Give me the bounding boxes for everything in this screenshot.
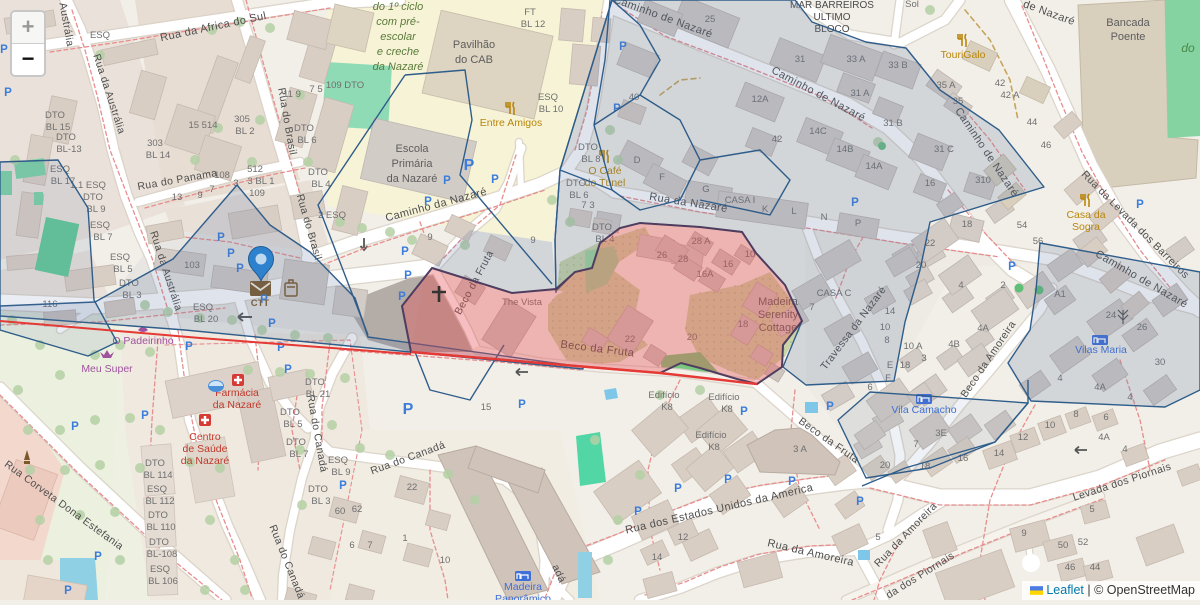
- svg-text:P: P: [856, 496, 864, 508]
- svg-text:Poente: Poente: [1111, 31, 1146, 43]
- svg-text:Bancada: Bancada: [1106, 17, 1150, 29]
- svg-text:109 DTO: 109 DTO: [326, 80, 364, 91]
- svg-text:3: 3: [921, 353, 926, 364]
- svg-text:22: 22: [407, 482, 418, 493]
- svg-text:4: 4: [958, 280, 963, 291]
- svg-text:6: 6: [1103, 412, 1108, 423]
- svg-text:e creche: e creche: [377, 46, 419, 58]
- svg-text:4A: 4A: [1098, 432, 1110, 443]
- svg-text:P: P: [141, 410, 149, 422]
- svg-text:52: 52: [1078, 537, 1089, 548]
- svg-text:BL 7: BL 7: [93, 232, 112, 243]
- svg-text:Edifício: Edifício: [695, 430, 726, 441]
- svg-text:da Nazaré: da Nazaré: [387, 173, 438, 185]
- svg-text:13: 13: [172, 192, 183, 203]
- svg-text:44: 44: [1027, 117, 1038, 128]
- svg-text:DTO: DTO: [45, 110, 65, 121]
- svg-text:10: 10: [1045, 420, 1056, 431]
- svg-text:15 514: 15 514: [188, 120, 217, 131]
- svg-text:2: 2: [1000, 280, 1005, 291]
- svg-text:Escola: Escola: [395, 143, 429, 155]
- svg-text:P: P: [424, 196, 432, 208]
- svg-text:3 A: 3 A: [793, 444, 807, 455]
- svg-text:BL 4: BL 4: [311, 179, 330, 190]
- svg-text:DTO: DTO: [294, 123, 314, 134]
- svg-text:P: P: [401, 246, 409, 258]
- svg-text:K8: K8: [721, 404, 733, 415]
- svg-text:BL-13: BL-13: [56, 144, 81, 155]
- svg-text:DTO: DTO: [305, 377, 325, 388]
- svg-text:de Saúde: de Saúde: [183, 443, 228, 455]
- svg-text:50: 50: [1058, 540, 1069, 551]
- svg-text:109: 109: [249, 188, 265, 199]
- svg-text:escolar: escolar: [380, 31, 417, 43]
- svg-text:44: 44: [1090, 562, 1101, 573]
- svg-text:5: 5: [875, 532, 880, 543]
- svg-text:DTO: DTO: [286, 437, 306, 448]
- svg-text:BL 14: BL 14: [146, 150, 170, 161]
- svg-text:P: P: [403, 401, 414, 418]
- svg-text:DTO: DTO: [83, 192, 103, 203]
- svg-text:1: 1: [402, 533, 407, 544]
- svg-text:8: 8: [1073, 409, 1078, 420]
- svg-text:Meu Super: Meu Super: [81, 363, 133, 375]
- svg-text:10: 10: [440, 555, 451, 566]
- svg-text:P: P: [284, 364, 292, 376]
- svg-text:Panorâmico: Panorâmico: [495, 593, 551, 600]
- svg-text:P: P: [788, 476, 796, 488]
- svg-text:12: 12: [678, 532, 689, 543]
- svg-text:do: do: [1181, 41, 1195, 55]
- svg-text:DTO: DTO: [308, 167, 328, 178]
- svg-text:ESQ: ESQ: [328, 455, 348, 466]
- svg-text:com pré-: com pré-: [376, 16, 420, 28]
- svg-text:62: 62: [352, 504, 363, 515]
- svg-text:O Padeirinho: O Padeirinho: [112, 335, 173, 347]
- svg-text:Edifício: Edifício: [648, 390, 679, 401]
- svg-text:46: 46: [1065, 562, 1076, 573]
- svg-text:DTO: DTO: [149, 537, 169, 548]
- svg-text:P: P: [518, 399, 526, 411]
- svg-text:P: P: [0, 44, 8, 56]
- svg-text:15: 15: [481, 402, 492, 413]
- svg-text:303: 303: [147, 138, 163, 149]
- svg-text:54: 54: [1017, 220, 1028, 231]
- svg-text:P: P: [64, 585, 72, 597]
- svg-text:P: P: [185, 341, 193, 353]
- svg-text:60: 60: [335, 506, 346, 517]
- svg-text:K8: K8: [708, 442, 720, 453]
- svg-text:DTO: DTO: [280, 407, 300, 418]
- svg-text:7: 7: [209, 184, 214, 195]
- svg-text:DTO: DTO: [308, 484, 328, 495]
- svg-text:BL 6: BL 6: [297, 135, 316, 146]
- svg-text:14: 14: [994, 448, 1005, 459]
- svg-text:46: 46: [1041, 140, 1052, 151]
- svg-text:P: P: [464, 157, 475, 174]
- svg-text:7 5: 7 5: [309, 84, 322, 95]
- svg-text:DTO: DTO: [148, 510, 168, 521]
- svg-text:BL 114: BL 114: [143, 470, 172, 481]
- svg-text:BL 12: BL 12: [521, 19, 545, 30]
- svg-text:BL 10: BL 10: [539, 104, 563, 115]
- svg-text:P: P: [1136, 199, 1144, 211]
- svg-text:10 A: 10 A: [903, 341, 923, 352]
- svg-text:P: P: [404, 270, 412, 282]
- svg-text:do CAB: do CAB: [455, 54, 493, 66]
- svg-text:ESQ: ESQ: [147, 484, 167, 495]
- svg-text:BL 9: BL 9: [331, 467, 350, 478]
- svg-text:BL 9: BL 9: [86, 204, 105, 215]
- svg-text:Madeira: Madeira: [504, 581, 542, 593]
- svg-text:9: 9: [427, 232, 432, 243]
- svg-text:P: P: [1008, 261, 1016, 273]
- svg-text:P: P: [674, 483, 682, 495]
- svg-text:da Nazaré: da Nazaré: [373, 61, 424, 73]
- svg-text:do 1º ciclo: do 1º ciclo: [373, 1, 424, 13]
- svg-text:ESQ: ESQ: [90, 220, 110, 231]
- svg-text:18: 18: [962, 219, 973, 230]
- svg-text:108: 108: [214, 170, 230, 181]
- svg-text:BL 106: BL 106: [148, 576, 178, 587]
- svg-text:3 BL 1: 3 BL 1: [247, 176, 274, 187]
- svg-text:4B: 4B: [948, 339, 960, 350]
- svg-text:Casa da: Casa da: [1066, 209, 1105, 221]
- svg-text:ESQ: ESQ: [538, 92, 558, 103]
- svg-text:BL 3: BL 3: [311, 496, 330, 507]
- svg-text:DTO: DTO: [56, 132, 76, 143]
- svg-text:5: 5: [1089, 504, 1094, 515]
- svg-text:BL-108: BL-108: [147, 549, 178, 560]
- svg-text:Entre Amigos: Entre Amigos: [480, 117, 542, 129]
- svg-text:42: 42: [995, 78, 1006, 89]
- svg-text:ESQ: ESQ: [150, 564, 170, 575]
- svg-text:Sogra: Sogra: [1072, 221, 1100, 233]
- svg-text:BL 21: BL 21: [306, 389, 330, 400]
- svg-text:P: P: [491, 174, 499, 186]
- svg-text:11 9: 11 9: [283, 89, 301, 100]
- svg-text:BL 7: BL 7: [289, 449, 308, 460]
- svg-text:TouriGalo: TouriGalo: [941, 49, 986, 61]
- svg-text:P: P: [724, 474, 732, 486]
- svg-text:BL 110: BL 110: [146, 522, 175, 533]
- svg-text:BL 5: BL 5: [283, 419, 302, 430]
- svg-text:Pavilhão: Pavilhão: [453, 39, 495, 51]
- svg-text:DTO: DTO: [145, 458, 165, 469]
- svg-text:P: P: [71, 421, 79, 433]
- svg-text:P: P: [443, 175, 451, 187]
- svg-text:42 A: 42 A: [1000, 90, 1020, 101]
- svg-text:BL 2: BL 2: [235, 126, 254, 137]
- svg-text:da Nazaré: da Nazaré: [213, 399, 262, 411]
- svg-text:4A: 4A: [977, 323, 989, 334]
- svg-text:ESQ: ESQ: [90, 30, 110, 41]
- svg-text:12: 12: [1018, 432, 1029, 443]
- svg-text:ESQ: ESQ: [110, 252, 130, 263]
- svg-text:P: P: [740, 406, 748, 418]
- svg-text:6: 6: [349, 540, 354, 551]
- svg-text:K8: K8: [661, 402, 673, 413]
- svg-text:P: P: [339, 480, 347, 492]
- svg-text:Centro: Centro: [189, 431, 221, 443]
- svg-text:Edifício: Edifício: [708, 392, 739, 403]
- svg-text:Sol: Sol: [905, 0, 919, 10]
- svg-text:305: 305: [234, 114, 250, 125]
- svg-text:9: 9: [197, 190, 202, 201]
- svg-text:P: P: [826, 401, 834, 413]
- svg-text:512: 512: [247, 164, 263, 175]
- svg-text:P: P: [94, 551, 102, 563]
- svg-text:9: 9: [1021, 528, 1026, 539]
- svg-text:P: P: [4, 87, 12, 99]
- svg-text:BL 112: BL 112: [145, 496, 174, 507]
- svg-text:ULTIMO: ULTIMO: [813, 12, 850, 23]
- svg-text:FT: FT: [524, 7, 536, 18]
- svg-text:P: P: [634, 506, 642, 518]
- svg-text:18: 18: [900, 360, 911, 371]
- svg-text:Primária: Primária: [392, 158, 434, 170]
- svg-text:14: 14: [652, 552, 663, 563]
- svg-text:BL 5: BL 5: [113, 264, 132, 275]
- svg-text:7: 7: [367, 540, 372, 551]
- svg-text:4: 4: [1122, 444, 1127, 455]
- svg-text:da Nazaré: da Nazaré: [181, 455, 230, 467]
